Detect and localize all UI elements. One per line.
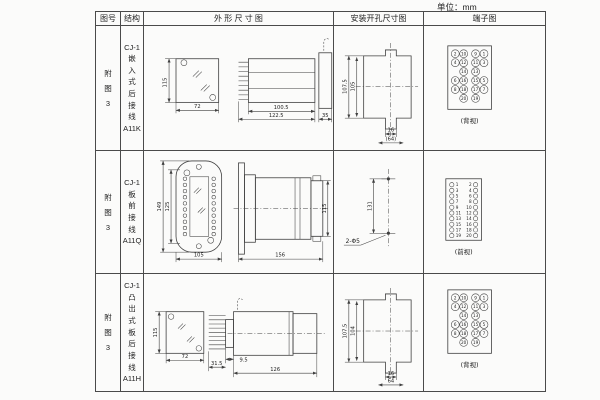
struct-cell-a11q: CJ-1 板 前 接 线 A11Q <box>121 151 144 274</box>
mounting-drawing-a11k: 107.5 105 16 (64) <box>334 26 423 150</box>
svg-text:17: 17 <box>473 331 479 336</box>
outline-cell-a11k: 115 72 100.5 <box>144 26 334 151</box>
svg-text:13: 13 <box>473 69 479 74</box>
svg-text:4: 4 <box>454 304 457 309</box>
dim-outer-h: 107.5 <box>342 324 348 339</box>
svg-text:7: 7 <box>456 199 459 204</box>
svg-text:9: 9 <box>474 51 477 56</box>
outline-drawing-a11k: 115 72 100.5 <box>144 26 333 150</box>
mounting-drawing-a11q: 131 2-Φ5 <box>334 151 423 273</box>
terminal-cell-a11k: 2 10 9 1 4 12 11 3 14 13 6 16 15 5 8 18 <box>424 26 546 151</box>
svg-text:11: 11 <box>473 304 479 309</box>
svg-text:3: 3 <box>483 60 486 65</box>
terminal-circles: 2 10 9 1 4 12 11 3 14 13 6 16 15 5 8 18 <box>451 294 488 347</box>
svg-text:9: 9 <box>474 295 477 300</box>
dim-pin-d: 9.5 <box>239 357 247 363</box>
svg-text:5: 5 <box>483 78 486 83</box>
terminal-cell-a11h: 2 10 9 1 4 12 11 3 14 13 6 16 15 5 8 18 <box>424 274 546 392</box>
svg-text:3: 3 <box>456 188 459 193</box>
side-view: 156 115 <box>234 163 331 262</box>
svg-text:12: 12 <box>461 304 467 309</box>
svg-text:14: 14 <box>461 313 467 318</box>
svg-text:6: 6 <box>454 78 457 83</box>
dim-front-w: 105 <box>194 253 204 259</box>
outline-drawing-a11q: 149 125 105 <box>144 151 333 273</box>
svg-text:20: 20 <box>466 233 472 238</box>
svg-text:18: 18 <box>461 331 467 336</box>
svg-text:5: 5 <box>456 194 459 199</box>
mounting-cell-a11k: 107.5 105 16 (64) <box>334 26 424 151</box>
hole-label: 2-Φ5 <box>346 238 361 245</box>
svg-text:15: 15 <box>473 322 479 327</box>
header-struct: 结构 <box>121 12 144 26</box>
svg-text:12: 12 <box>461 60 467 65</box>
svg-text:10: 10 <box>466 205 472 210</box>
terminal-circles: 2 10 9 1 4 12 11 3 14 13 6 16 15 5 8 18 <box>451 50 488 103</box>
terminal-rows <box>183 177 215 236</box>
svg-text:8: 8 <box>454 331 457 336</box>
dim-proj: 31.5 <box>211 361 222 367</box>
dimension-table: 图号 结构 外 形 尺 寸 图 安装开孔尺寸图 端子图 附 图 3 CJ-1 嵌… <box>95 11 546 392</box>
svg-text:18: 18 <box>466 227 472 232</box>
front-view: 115 72 <box>153 312 204 364</box>
svg-text:1: 1 <box>456 182 459 187</box>
svg-text:19: 19 <box>456 233 462 238</box>
dim-total-w: 156 <box>275 253 285 259</box>
svg-text:11: 11 <box>473 60 479 65</box>
dim-inner-h: 105 <box>351 82 357 92</box>
svg-text:4: 4 <box>469 188 472 193</box>
dim-base-w: (64) <box>386 136 397 142</box>
fig-cell-a11h: 附 图 3 <box>96 274 121 392</box>
dim-total-w: 122.5 <box>269 113 284 119</box>
svg-text:15: 15 <box>473 78 479 83</box>
svg-text:16: 16 <box>466 222 472 227</box>
svg-text:13: 13 <box>456 216 462 221</box>
svg-text:17: 17 <box>473 87 479 92</box>
side-view: 9.5 31.5 126 <box>209 299 325 378</box>
svg-text:16: 16 <box>461 78 467 83</box>
svg-text:6: 6 <box>454 322 457 327</box>
front-view: 115 72 <box>163 59 219 114</box>
terminal-diagram-back-a11k: 2 10 9 1 4 12 11 3 14 13 6 16 15 5 8 18 <box>424 26 545 150</box>
svg-text:18: 18 <box>461 87 467 92</box>
svg-text:14: 14 <box>466 216 472 221</box>
header-mounting: 安装开孔尺寸图 <box>334 12 424 26</box>
outline-drawing-a11h: 115 72 9.5 <box>144 274 333 391</box>
dim-front-w: 72 <box>182 354 189 360</box>
svg-text:7: 7 <box>483 87 486 92</box>
svg-text:10: 10 <box>461 295 467 300</box>
dim-inner-h: 125 <box>165 202 171 212</box>
svg-text:10: 10 <box>461 51 467 56</box>
dim-tab-w: 16 <box>388 371 395 377</box>
svg-text:13: 13 <box>473 313 479 318</box>
svg-text:1: 1 <box>483 295 486 300</box>
dim-front-h: 115 <box>153 328 159 338</box>
svg-text:11: 11 <box>456 210 462 215</box>
svg-text:14: 14 <box>461 69 467 74</box>
svg-text:12: 12 <box>466 210 472 215</box>
svg-text:20: 20 <box>461 96 467 101</box>
svg-text:3: 3 <box>483 304 486 309</box>
mounting-drawing-a11h: 107.5 104 16 64 <box>334 274 423 391</box>
fig-cell-a11q: 附 图 3 <box>96 151 121 274</box>
svg-text:9: 9 <box>456 205 459 210</box>
svg-text:4: 4 <box>454 60 457 65</box>
svg-text:2: 2 <box>469 182 472 187</box>
terminal-diagram-back-a11h: 2 10 9 1 4 12 11 3 14 13 6 16 15 5 8 18 <box>424 274 545 391</box>
terminal-circles: 1 3 5 7 9 11 13 15 17 19 2 4 6 8 10 12 1 <box>450 182 478 238</box>
svg-text:2: 2 <box>454 295 457 300</box>
mounting-cell-a11q: 131 2-Φ5 <box>334 151 424 274</box>
header-outline: 外 形 尺 寸 图 <box>144 12 334 26</box>
dim-front-h: 115 <box>163 78 169 88</box>
header-terminal: 端子图 <box>424 12 546 26</box>
manual-page: 单位：mm 图号 结构 外 形 尺 寸 图 安装开孔尺寸图 端子图 附 图 3 … <box>0 0 600 400</box>
header-fig: 图号 <box>96 12 121 26</box>
terminal-diagram-front-a11q: 1 3 5 7 9 11 13 15 17 19 2 4 6 8 10 12 1 <box>424 151 545 273</box>
outline-cell-a11h: 115 72 9.5 <box>144 274 334 392</box>
struct-cell-a11k: CJ-1 嵌 入 式 后 接 线 A11K <box>121 26 144 151</box>
svg-text:17: 17 <box>456 227 462 232</box>
dim-base-w: 64 <box>388 379 395 385</box>
dim-body-w: 100.5 <box>274 105 289 111</box>
svg-text:8: 8 <box>469 199 472 204</box>
struct-cell-a11h: CJ-1 凸 出 式 板 后 接 线 A11H <box>121 274 144 392</box>
side-view: 100.5 122.5 35 <box>239 39 332 123</box>
svg-text:1: 1 <box>483 51 486 56</box>
view-caption: (背视) <box>461 360 479 369</box>
dim-flange-w: 35 <box>322 113 329 119</box>
dim-inner-h: 104 <box>351 326 357 336</box>
svg-text:19: 19 <box>473 96 479 101</box>
front-view: 149 125 105 <box>157 161 222 262</box>
dim-outer-h: 107.5 <box>342 79 348 94</box>
svg-text:8: 8 <box>454 87 457 92</box>
svg-text:16: 16 <box>461 322 467 327</box>
terminal-cell-a11q: 1 3 5 7 9 11 13 15 17 19 2 4 6 8 10 12 1 <box>424 151 546 274</box>
svg-text:7: 7 <box>483 331 486 336</box>
svg-text:2: 2 <box>454 51 457 56</box>
svg-text:5: 5 <box>483 322 486 327</box>
dim-outer-h: 149 <box>157 202 163 212</box>
dim-hole-dist: 131 <box>367 201 373 211</box>
view-caption: (前视) <box>455 247 473 256</box>
dim-tab-w: 16 <box>388 128 395 134</box>
dim-front-w: 72 <box>194 104 201 110</box>
dim-side-h: 115 <box>322 204 328 214</box>
fig-cell-a11k: 附 图 3 <box>96 26 121 151</box>
dim-total-w: 126 <box>270 367 280 373</box>
svg-text:19: 19 <box>473 340 479 345</box>
mounting-cell-a11h: 107.5 104 16 64 <box>334 274 424 392</box>
outline-cell-a11q: 149 125 105 <box>144 151 334 274</box>
svg-text:15: 15 <box>456 222 462 227</box>
view-caption: (背视) <box>461 116 479 125</box>
svg-text:20: 20 <box>461 340 467 345</box>
svg-text:6: 6 <box>469 194 472 199</box>
